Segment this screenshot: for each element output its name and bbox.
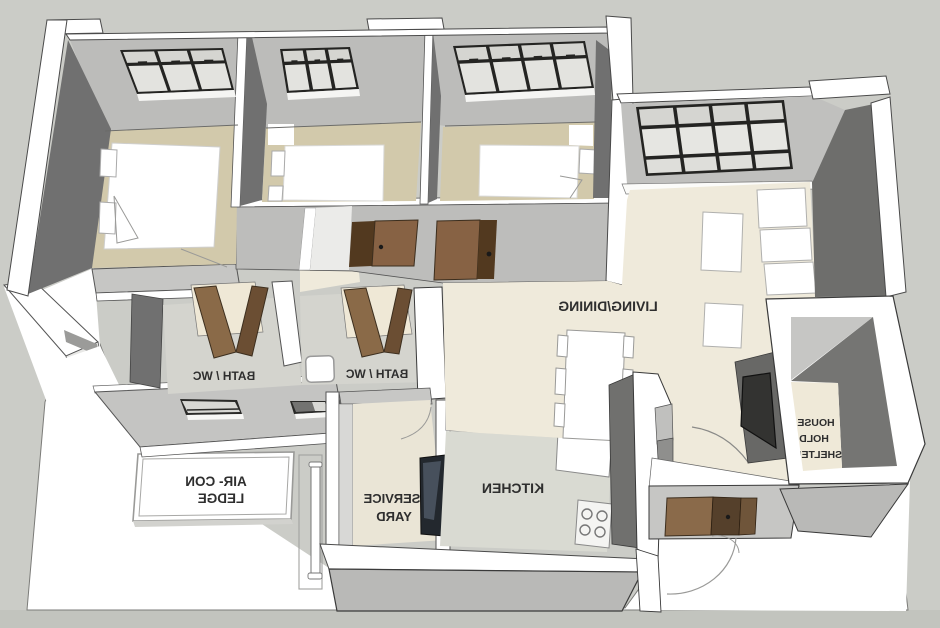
svg-text:LIVING/DINING: LIVING/DINING [558,298,658,314]
svg-text:KITCHEN: KITCHEN [482,480,544,496]
svg-text:YARD: YARD [376,509,412,524]
svg-text:HOLD: HOLD [799,433,829,445]
svg-text:BATH / WC: BATH / WC [345,367,408,381]
svg-text:BATH / WC: BATH / WC [192,369,255,383]
svg-text:AIR- CON: AIR- CON [185,474,247,489]
svg-text:LEDGE: LEDGE [198,491,245,506]
svg-text:HOUSE: HOUSE [797,417,834,429]
svg-text:SERVICE: SERVICE [363,491,420,506]
